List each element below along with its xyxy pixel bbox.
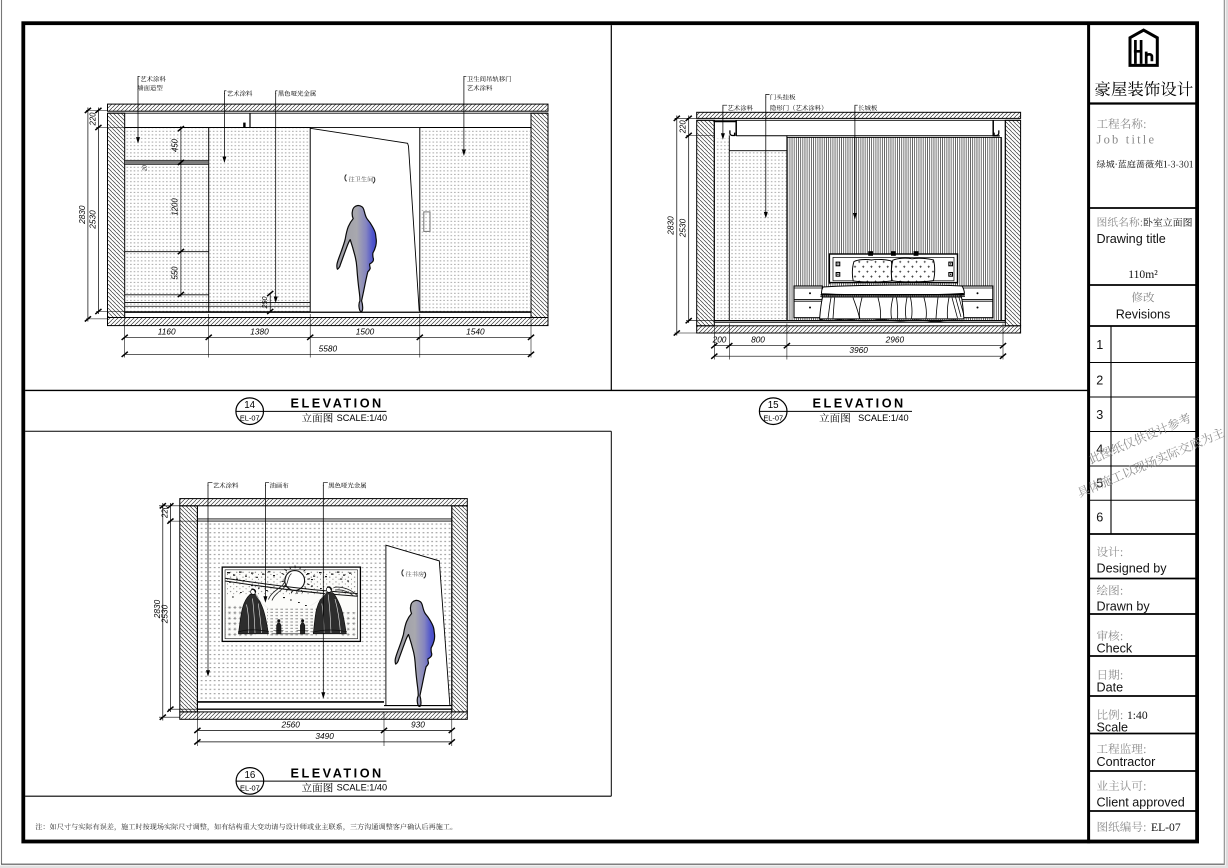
svg-text:SCALE:1/40: SCALE:1/40 — [337, 413, 388, 423]
svg-text:16: 16 — [244, 770, 255, 781]
svg-text:2560: 2560 — [280, 719, 300, 729]
svg-text:1200: 1200 — [171, 198, 180, 216]
svg-text:EL-07: EL-07 — [240, 414, 260, 423]
svg-text:800: 800 — [751, 335, 765, 345]
svg-text:220: 220 — [88, 112, 97, 127]
svg-text:200: 200 — [712, 335, 727, 345]
svg-text:Contractor: Contractor — [1097, 755, 1156, 769]
svg-text:2830: 2830 — [666, 216, 676, 236]
svg-text:Drawn by: Drawn by — [1097, 600, 1151, 614]
svg-text:Scale: Scale — [1097, 721, 1129, 735]
svg-text:Drawing title: Drawing title — [1097, 232, 1166, 246]
svg-text:Client approved: Client approved — [1097, 796, 1185, 810]
svg-text:Date: Date — [1097, 681, 1124, 695]
svg-text:Job title: Job title — [1097, 133, 1157, 147]
svg-text:3: 3 — [1096, 408, 1103, 422]
svg-text:ELEVATION: ELEVATION — [291, 766, 384, 780]
svg-text:1160: 1160 — [158, 326, 176, 336]
svg-text:EL-07: EL-07 — [763, 414, 783, 423]
svg-text:110m²: 110m² — [1128, 268, 1158, 281]
svg-text:Check: Check — [1097, 642, 1133, 656]
svg-text:Revisions: Revisions — [1116, 308, 1171, 322]
svg-text:250: 250 — [260, 297, 269, 310]
svg-text:SCALE:1/40: SCALE:1/40 — [858, 413, 909, 423]
svg-text:Designed by: Designed by — [1097, 562, 1168, 576]
svg-text:3490: 3490 — [315, 731, 334, 741]
svg-text:930: 930 — [411, 719, 425, 729]
svg-text:1380: 1380 — [250, 326, 269, 336]
svg-text:1540: 1540 — [466, 326, 485, 336]
svg-text:ELEVATION: ELEVATION — [291, 397, 384, 411]
svg-text:14: 14 — [244, 400, 255, 411]
svg-text:SCALE:1/40: SCALE:1/40 — [337, 783, 388, 793]
svg-text:220: 220 — [160, 504, 169, 519]
svg-text:6: 6 — [1096, 511, 1103, 525]
svg-text:2530: 2530 — [87, 210, 97, 230]
svg-text:1: 1 — [1096, 338, 1103, 352]
svg-text:5580: 5580 — [319, 343, 338, 353]
svg-text:2: 2 — [1096, 373, 1103, 387]
svg-text:2530: 2530 — [159, 604, 169, 624]
svg-text:3960: 3960 — [849, 345, 868, 355]
svg-text:2960: 2960 — [885, 335, 905, 345]
svg-text:15: 15 — [768, 400, 779, 411]
svg-text:450: 450 — [171, 138, 180, 152]
svg-text:EL-07: EL-07 — [240, 783, 260, 792]
svg-text:ELEVATION: ELEVATION — [813, 397, 906, 411]
svg-text:1:40: 1:40 — [1127, 709, 1148, 722]
svg-text:2530: 2530 — [678, 218, 688, 238]
svg-text:550: 550 — [171, 266, 180, 280]
svg-text:20: 20 — [143, 165, 149, 172]
svg-text:2830: 2830 — [77, 205, 87, 225]
svg-text:EL-07: EL-07 — [1151, 821, 1181, 834]
svg-text:1500: 1500 — [356, 326, 375, 336]
svg-text:220: 220 — [679, 120, 688, 135]
